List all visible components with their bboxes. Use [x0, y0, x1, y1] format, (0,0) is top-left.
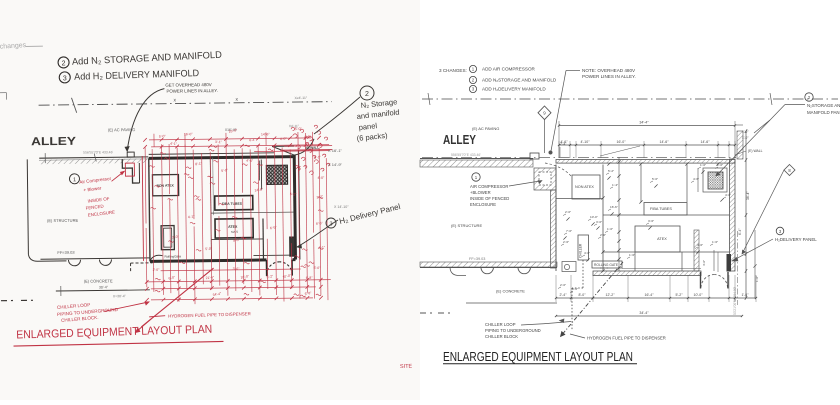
svg-text:(E) CONCRETE: (E) CONCRETE — [496, 289, 525, 294]
svg-text:556'55'70"E 433.46': 556'55'70"E 433.46' — [451, 153, 481, 157]
svg-text:556'55'70"E 433.46': 556'55'70"E 433.46' — [83, 150, 113, 154]
svg-text:10'-0": 10'-0" — [590, 215, 598, 219]
svg-text:14'-6": 14'-6" — [261, 132, 271, 136]
svg-text:(E) WALL: (E) WALL — [748, 149, 763, 153]
svg-text:POWER LINES IN ALLEY.: POWER LINES IN ALLEY. — [582, 74, 636, 79]
svg-text:2'-4": 2'-4" — [560, 293, 568, 297]
svg-text:1'-6": 1'-6" — [742, 293, 750, 297]
svg-text:1'-0": 1'-0" — [607, 227, 613, 231]
svg-text:3'-0": 3'-0" — [596, 220, 602, 224]
svg-text:+BLOWER: +BLOWER — [470, 190, 491, 195]
svg-text:5'-2": 5'-2" — [676, 293, 684, 297]
svg-text:8'-0": 8'-0" — [572, 287, 578, 291]
svg-text:HYDROGEN FUEL PIPE TO DISP: HYDROGEN FUEL PIPE TO DISPENSER — [587, 336, 666, 341]
svg-text:MA.S: MA.S — [231, 230, 238, 234]
svg-text:2'-6": 2'-6" — [563, 240, 569, 244]
svg-text:7'-0": 7'-0" — [566, 229, 572, 233]
svg-text:1'-6": 1'-6" — [629, 253, 635, 257]
svg-text:8'-0": 8'-0" — [579, 293, 587, 297]
svg-text:14'-6": 14'-6" — [701, 140, 711, 144]
svg-text:2'-0": 2'-0" — [153, 268, 161, 272]
svg-text:X≥4'-11": X≥4'-11" — [294, 96, 307, 100]
svg-text:4'-6": 4'-6" — [702, 260, 706, 266]
svg-text:5'-0": 5'-0" — [295, 127, 303, 131]
svg-text:NOTE: OVERHEAD 480V: NOTE: OVERHEAD 480V — [582, 68, 636, 73]
svg-text:MANIFOLD PANEL: MANIFOLD PANEL — [807, 110, 840, 115]
svg-text:ATEX: ATEX — [228, 225, 238, 229]
svg-text:1: 1 — [73, 177, 76, 183]
svg-text:4'-0": 4'-0" — [584, 251, 590, 255]
svg-text:3'-1": 3'-1" — [215, 140, 223, 144]
svg-text:5'-0": 5'-0" — [652, 177, 658, 181]
svg-text:4'-4": 4'-4" — [246, 159, 254, 163]
svg-text:1'-0": 1'-0" — [700, 163, 706, 167]
svg-text:30'-4": 30'-4" — [99, 285, 109, 289]
svg-text:ADD N₂STORAGE AND MANIFOLD: ADD N₂STORAGE AND MANIFOLD — [482, 78, 557, 83]
svg-text:POWER LINES IN ALLEY.: POWER LINES IN ALLEY. — [166, 88, 217, 94]
svg-text:ADD H₂DELIVERY MANIFOLD: ADD H₂DELIVERY MANIFOLD — [482, 87, 546, 92]
svg-text:34'-4": 34'-4" — [639, 311, 649, 315]
svg-text:2: 2 — [365, 91, 369, 98]
svg-text:3'-6": 3'-6" — [648, 219, 654, 223]
svg-text:4'-6": 4'-6" — [697, 243, 703, 247]
svg-text:10'-0": 10'-0" — [694, 293, 704, 297]
svg-text:2'-0": 2'-0" — [565, 210, 571, 214]
svg-text:X=30'-4": X=30'-4" — [113, 294, 127, 298]
svg-text:FIBA TUBES: FIBA TUBES — [650, 207, 672, 211]
svg-text:X 14'-9": X 14'-9" — [328, 162, 343, 167]
svg-text:FF=39.03: FF=39.03 — [469, 257, 485, 261]
svg-text:1'-6": 1'-6" — [755, 276, 759, 282]
svg-text:RollingGate: RollingGate — [164, 254, 181, 258]
svg-text:ENCLOSURE: ENCLOSURE — [470, 202, 496, 207]
svg-text:4'-0": 4'-0" — [317, 176, 325, 180]
svg-text:CHILLER BLOCK: CHILLER BLOCK — [485, 334, 518, 339]
svg-text:N₂STORAGE AND: N₂STORAGE AND — [807, 103, 840, 108]
svg-text:ALLEY: ALLEY — [443, 132, 476, 147]
svg-text:X 14'-10": X 14'-10" — [334, 205, 349, 209]
svg-text:CHILLER: CHILLER — [579, 243, 583, 258]
svg-text:34'-4": 34'-4" — [639, 121, 649, 125]
svg-text:2'-0": 2'-0" — [560, 283, 566, 287]
svg-text:X 16'-1": X 16'-1" — [328, 148, 343, 153]
svg-text:(E) AC PAVING: (E) AC PAVING — [472, 126, 499, 131]
svg-text:FF=39.03: FF=39.03 — [57, 250, 75, 255]
svg-text:NON ATEX: NON ATEX — [575, 185, 594, 189]
svg-text:ATEX: ATEX — [657, 237, 667, 241]
svg-text:6'-5": 6'-5" — [316, 221, 324, 226]
svg-text:6'-8": 6'-8" — [306, 276, 314, 280]
svg-text:PIPING TO UNDERGROUND: PIPING TO UNDERGROUND — [485, 328, 541, 333]
svg-text:SITE: SITE — [400, 364, 413, 370]
svg-text:GET OVERHEAD 480V: GET OVERHEAD 480V — [165, 82, 211, 88]
svg-text:1'-6": 1'-6" — [712, 240, 718, 244]
svg-text:ALLEY: ALLEY — [31, 136, 77, 149]
svg-text:3'-6": 3'-6" — [233, 267, 241, 271]
svg-text:16'-0": 16'-0" — [184, 132, 194, 136]
svg-text:ADD AIR COMPRESSOR: ADD AIR COMPRESSOR — [482, 67, 536, 72]
svg-text:4'-6": 4'-6" — [693, 177, 699, 181]
svg-text:4'-1": 4'-1" — [170, 142, 178, 146]
svg-text:INSIDE OF FENCED: INSIDE OF FENCED — [470, 196, 509, 201]
svg-text:2: 2 — [62, 60, 66, 67]
svg-text:16'-4": 16'-4" — [645, 293, 655, 297]
svg-text:ROLLING GATE: ROLLING GATE — [594, 263, 619, 267]
svg-text:6'-4": 6'-4" — [738, 229, 742, 235]
svg-text:FIBA TUBES: FIBA TUBES — [222, 202, 243, 206]
svg-text:12'-2": 12'-2" — [606, 293, 616, 297]
svg-text:3 CHANGES:: 3 CHANGES: — [439, 68, 467, 73]
svg-text:(E) AC PAVING: (E) AC PAVING — [108, 127, 135, 132]
svg-text:5'-0": 5'-0" — [205, 247, 213, 252]
svg-text:(E) STRUCTURE: (E) STRUCTURE — [47, 218, 79, 223]
svg-text:AIR COMPRESSOR: AIR COMPRESSOR — [470, 184, 508, 189]
svg-text:36'-4": 36'-4" — [746, 191, 750, 200]
svg-text:5'-2": 5'-2" — [608, 169, 614, 173]
svg-text:1'-4": 1'-4" — [612, 183, 618, 187]
svg-text:(E) CONCRETE: (E) CONCRETE — [84, 278, 113, 283]
svg-text:8'-1": 8'-1" — [195, 162, 203, 167]
svg-text:(E) STRUCTURE: (E) STRUCTURE — [451, 223, 482, 228]
svg-text:16'-6": 16'-6" — [610, 205, 618, 209]
svg-text:5'-2": 5'-2" — [290, 192, 298, 196]
svg-text:CHILLER LOOP: CHILLER LOOP — [485, 322, 516, 327]
svg-text:6'-0": 6'-0" — [314, 266, 322, 270]
svg-text:4'-0": 4'-0" — [280, 136, 288, 141]
svg-text:4'-0": 4'-0" — [725, 193, 731, 197]
svg-text:ENLARGED EQUIPMENT LAYOUT PLAN: ENLARGED EQUIPMENT LAYOUT PLAN — [443, 349, 633, 364]
svg-text:4'-6": 4'-6" — [561, 140, 569, 144]
svg-text:H₂DELIVERY PANEL: H₂DELIVERY PANEL — [775, 237, 817, 242]
svg-text:4'-10": 4'-10" — [581, 140, 591, 144]
svg-text:2'-0": 2'-0" — [600, 233, 606, 237]
svg-text:5'-0": 5'-0" — [159, 134, 167, 139]
svg-text:3: 3 — [63, 75, 67, 82]
svg-text:16'-0": 16'-0" — [617, 140, 627, 144]
svg-text:14'-6": 14'-6" — [660, 140, 670, 144]
